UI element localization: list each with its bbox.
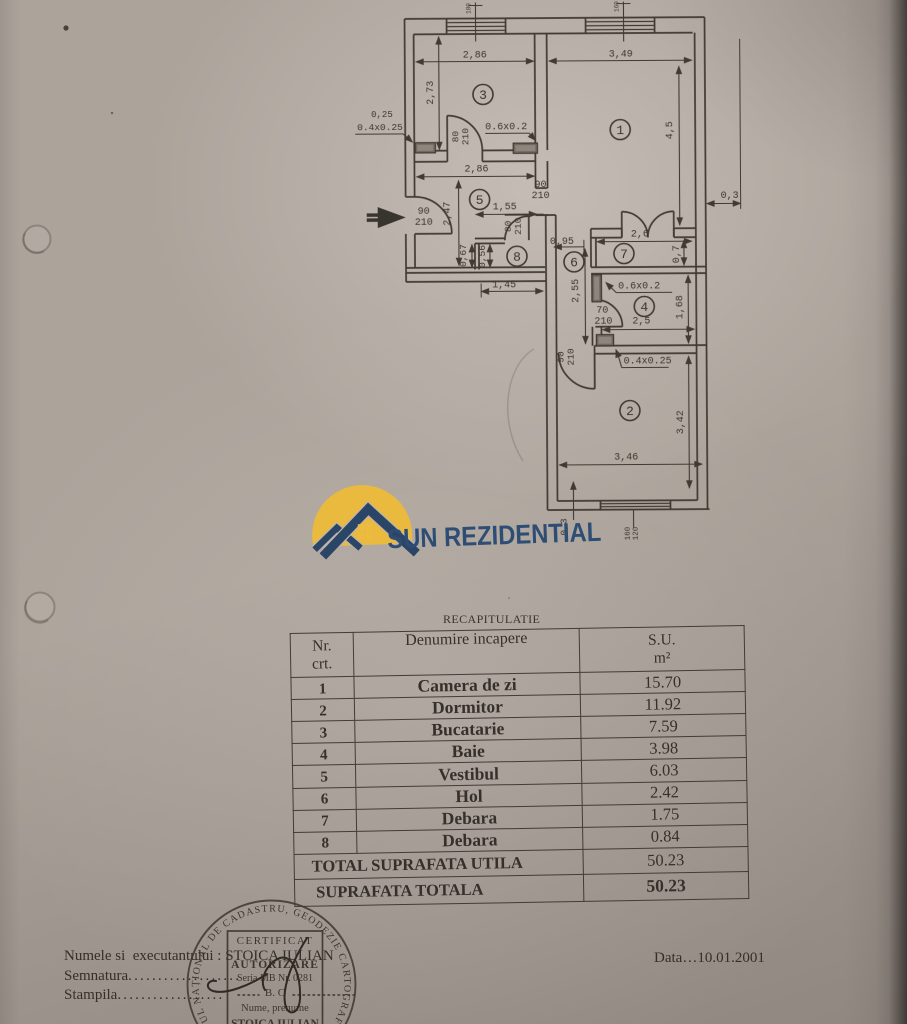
svg-text:SUN REZIDENTIAL: SUN REZIDENTIAL: [387, 517, 602, 554]
svg-text:6: 6: [570, 255, 578, 270]
svg-text:0,3: 0,3: [721, 191, 739, 202]
svg-text:0,67: 0,67: [458, 244, 469, 267]
svg-text:90: 90: [535, 180, 547, 191]
svg-text:2,86: 2,86: [463, 50, 487, 61]
svg-text:0.6x0.2: 0.6x0.2: [618, 281, 660, 292]
svg-text:2,47: 2,47: [443, 202, 454, 226]
svg-text:3,49: 3,49: [609, 50, 633, 61]
svg-text:210: 210: [460, 128, 471, 145]
svg-text:B. C: B. C: [265, 987, 285, 999]
svg-text:7: 7: [620, 247, 628, 262]
svg-text:210: 210: [415, 218, 433, 229]
svg-text:0,7: 0,7: [672, 245, 683, 263]
svg-text:2,73: 2,73: [426, 81, 437, 105]
svg-text:210: 210: [532, 191, 550, 202]
svg-text:8: 8: [513, 250, 521, 265]
svg-text:210: 210: [566, 348, 577, 365]
svg-text:210: 210: [513, 217, 524, 234]
svg-text:3: 3: [479, 88, 487, 103]
svg-text:0,56: 0,56: [477, 245, 488, 268]
svg-text:4,5: 4,5: [665, 121, 676, 139]
svg-text:3,46: 3,46: [614, 453, 638, 464]
svg-text:1,55: 1,55: [493, 202, 517, 213]
svg-text:3,42: 3,42: [676, 410, 687, 434]
svg-text:2: 2: [626, 404, 634, 419]
svg-text:210: 210: [594, 317, 612, 328]
svg-text:0,25: 0,25: [371, 110, 393, 120]
svg-text:0,95: 0,95: [550, 237, 574, 248]
svg-text:0.6x0.2: 0.6x0.2: [485, 122, 527, 133]
svg-text:160: 160: [613, 1, 620, 12]
svg-text:2,86: 2,86: [464, 164, 488, 175]
svg-text:70: 70: [596, 306, 608, 317]
svg-text:120: 120: [633, 526, 641, 540]
svg-text:2,5: 2,5: [632, 316, 650, 327]
svg-text:5: 5: [476, 193, 484, 208]
svg-text:STOICA IULIAN: STOICA IULIAN: [231, 1018, 319, 1024]
svg-text:160: 160: [625, 526, 633, 540]
svg-text:2,55: 2,55: [571, 279, 582, 303]
svg-text:1,45: 1,45: [492, 280, 516, 291]
svg-text:1: 1: [616, 123, 624, 138]
svg-text:1,68: 1,68: [675, 295, 686, 319]
svg-text:2,6: 2,6: [631, 229, 649, 240]
svg-text:180: 180: [465, 3, 472, 14]
svg-text:0.4x0.25: 0.4x0.25: [357, 122, 403, 133]
svg-text:Seria MB Nr. 0281: Seria MB Nr. 0281: [237, 973, 313, 984]
svg-text:0.4x0.25: 0.4x0.25: [624, 356, 672, 367]
svg-text:90: 90: [418, 207, 430, 218]
svg-text:4: 4: [640, 300, 648, 315]
